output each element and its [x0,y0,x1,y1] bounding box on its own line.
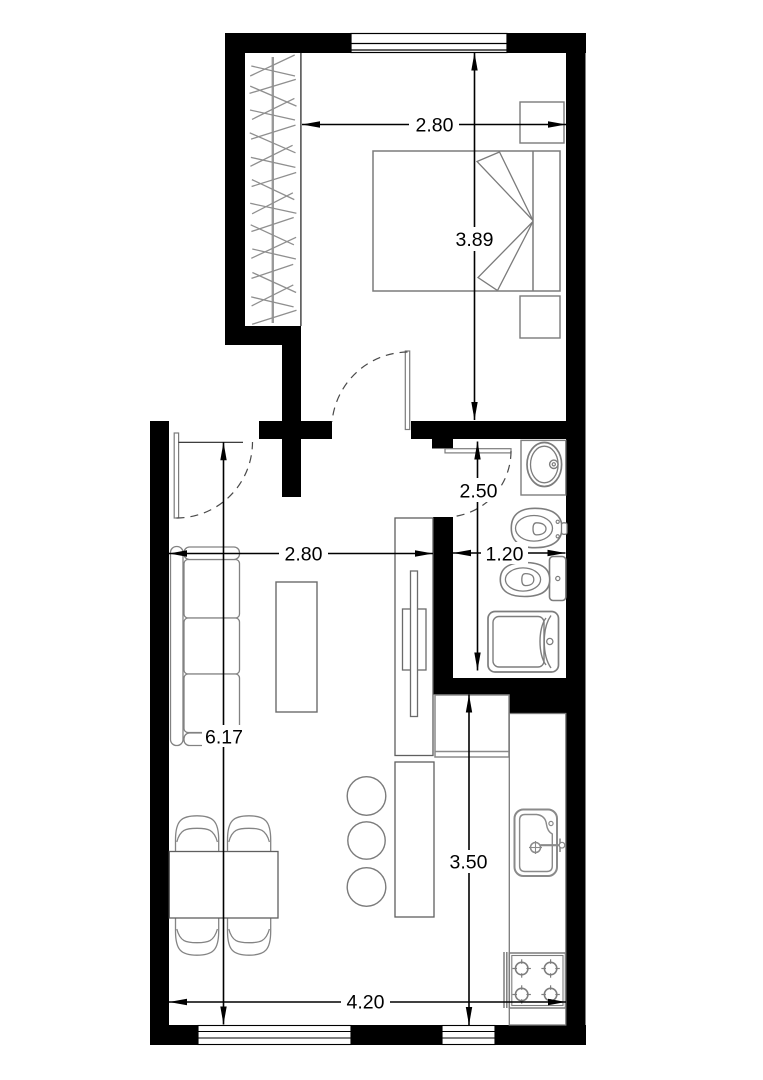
svg-text:2.50: 2.50 [460,481,498,503]
svg-text:1.20: 1.20 [486,544,524,566]
svg-text:4.20: 4.20 [347,992,385,1014]
svg-text:3.89: 3.89 [456,229,494,251]
svg-text:2.80: 2.80 [285,544,323,566]
svg-text:6.17: 6.17 [205,727,243,749]
svg-text:3.50: 3.50 [450,852,488,874]
svg-text:2.80: 2.80 [416,115,454,137]
